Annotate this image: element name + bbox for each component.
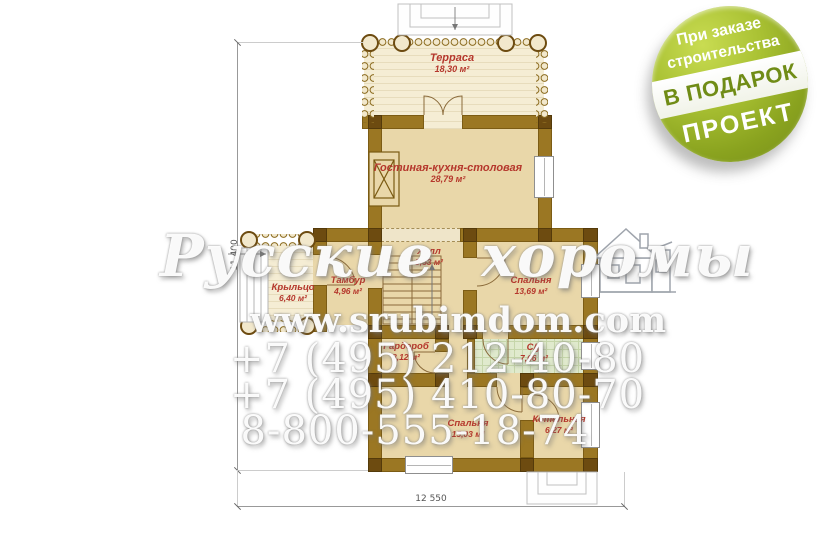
promo-badge: При заказе строительства В ПОДАРОК ПРОЕК… (637, 0, 822, 177)
room-area: 18,30 м² (392, 64, 512, 74)
room-name: Гостиная-кухня-столовая (368, 162, 528, 174)
floor-plan-page: Терраса 18,30 м² Гостиная-кухня-столовая… (0, 0, 822, 548)
extension-line (624, 472, 625, 506)
promo-badge-circle: При заказе строительства В ПОДАРОК ПРОЕК… (637, 0, 822, 177)
room-label-terrace: Терраса 18,30 м² (392, 52, 512, 74)
room-area: 28,79 м² (368, 174, 528, 184)
watermark-phone-3: 8-800-555-18-74 (230, 408, 600, 454)
room-label-living: Гостиная-кухня-столовая 28,79 м² (368, 162, 528, 184)
watermark-site: www.srubimdom.com (250, 300, 580, 341)
window (405, 456, 453, 474)
log-post (520, 458, 534, 472)
extension-line (237, 470, 368, 471)
door-opening (424, 115, 462, 129)
wall-segment (368, 458, 598, 472)
dimension-width-label: 12 550 (396, 494, 466, 504)
dimension-line-horizontal (237, 506, 625, 507)
log-post (368, 115, 382, 129)
log-post (538, 115, 552, 129)
entry-steps-bottom (527, 472, 597, 504)
entry-steps-top (398, 4, 512, 35)
extension-line (237, 42, 363, 43)
window (534, 156, 554, 198)
watermark-brand: Русские хоромы (160, 222, 620, 290)
room-name: Терраса (392, 52, 512, 64)
extension-line (237, 470, 238, 506)
log-post (368, 458, 382, 472)
log-post (583, 458, 598, 472)
